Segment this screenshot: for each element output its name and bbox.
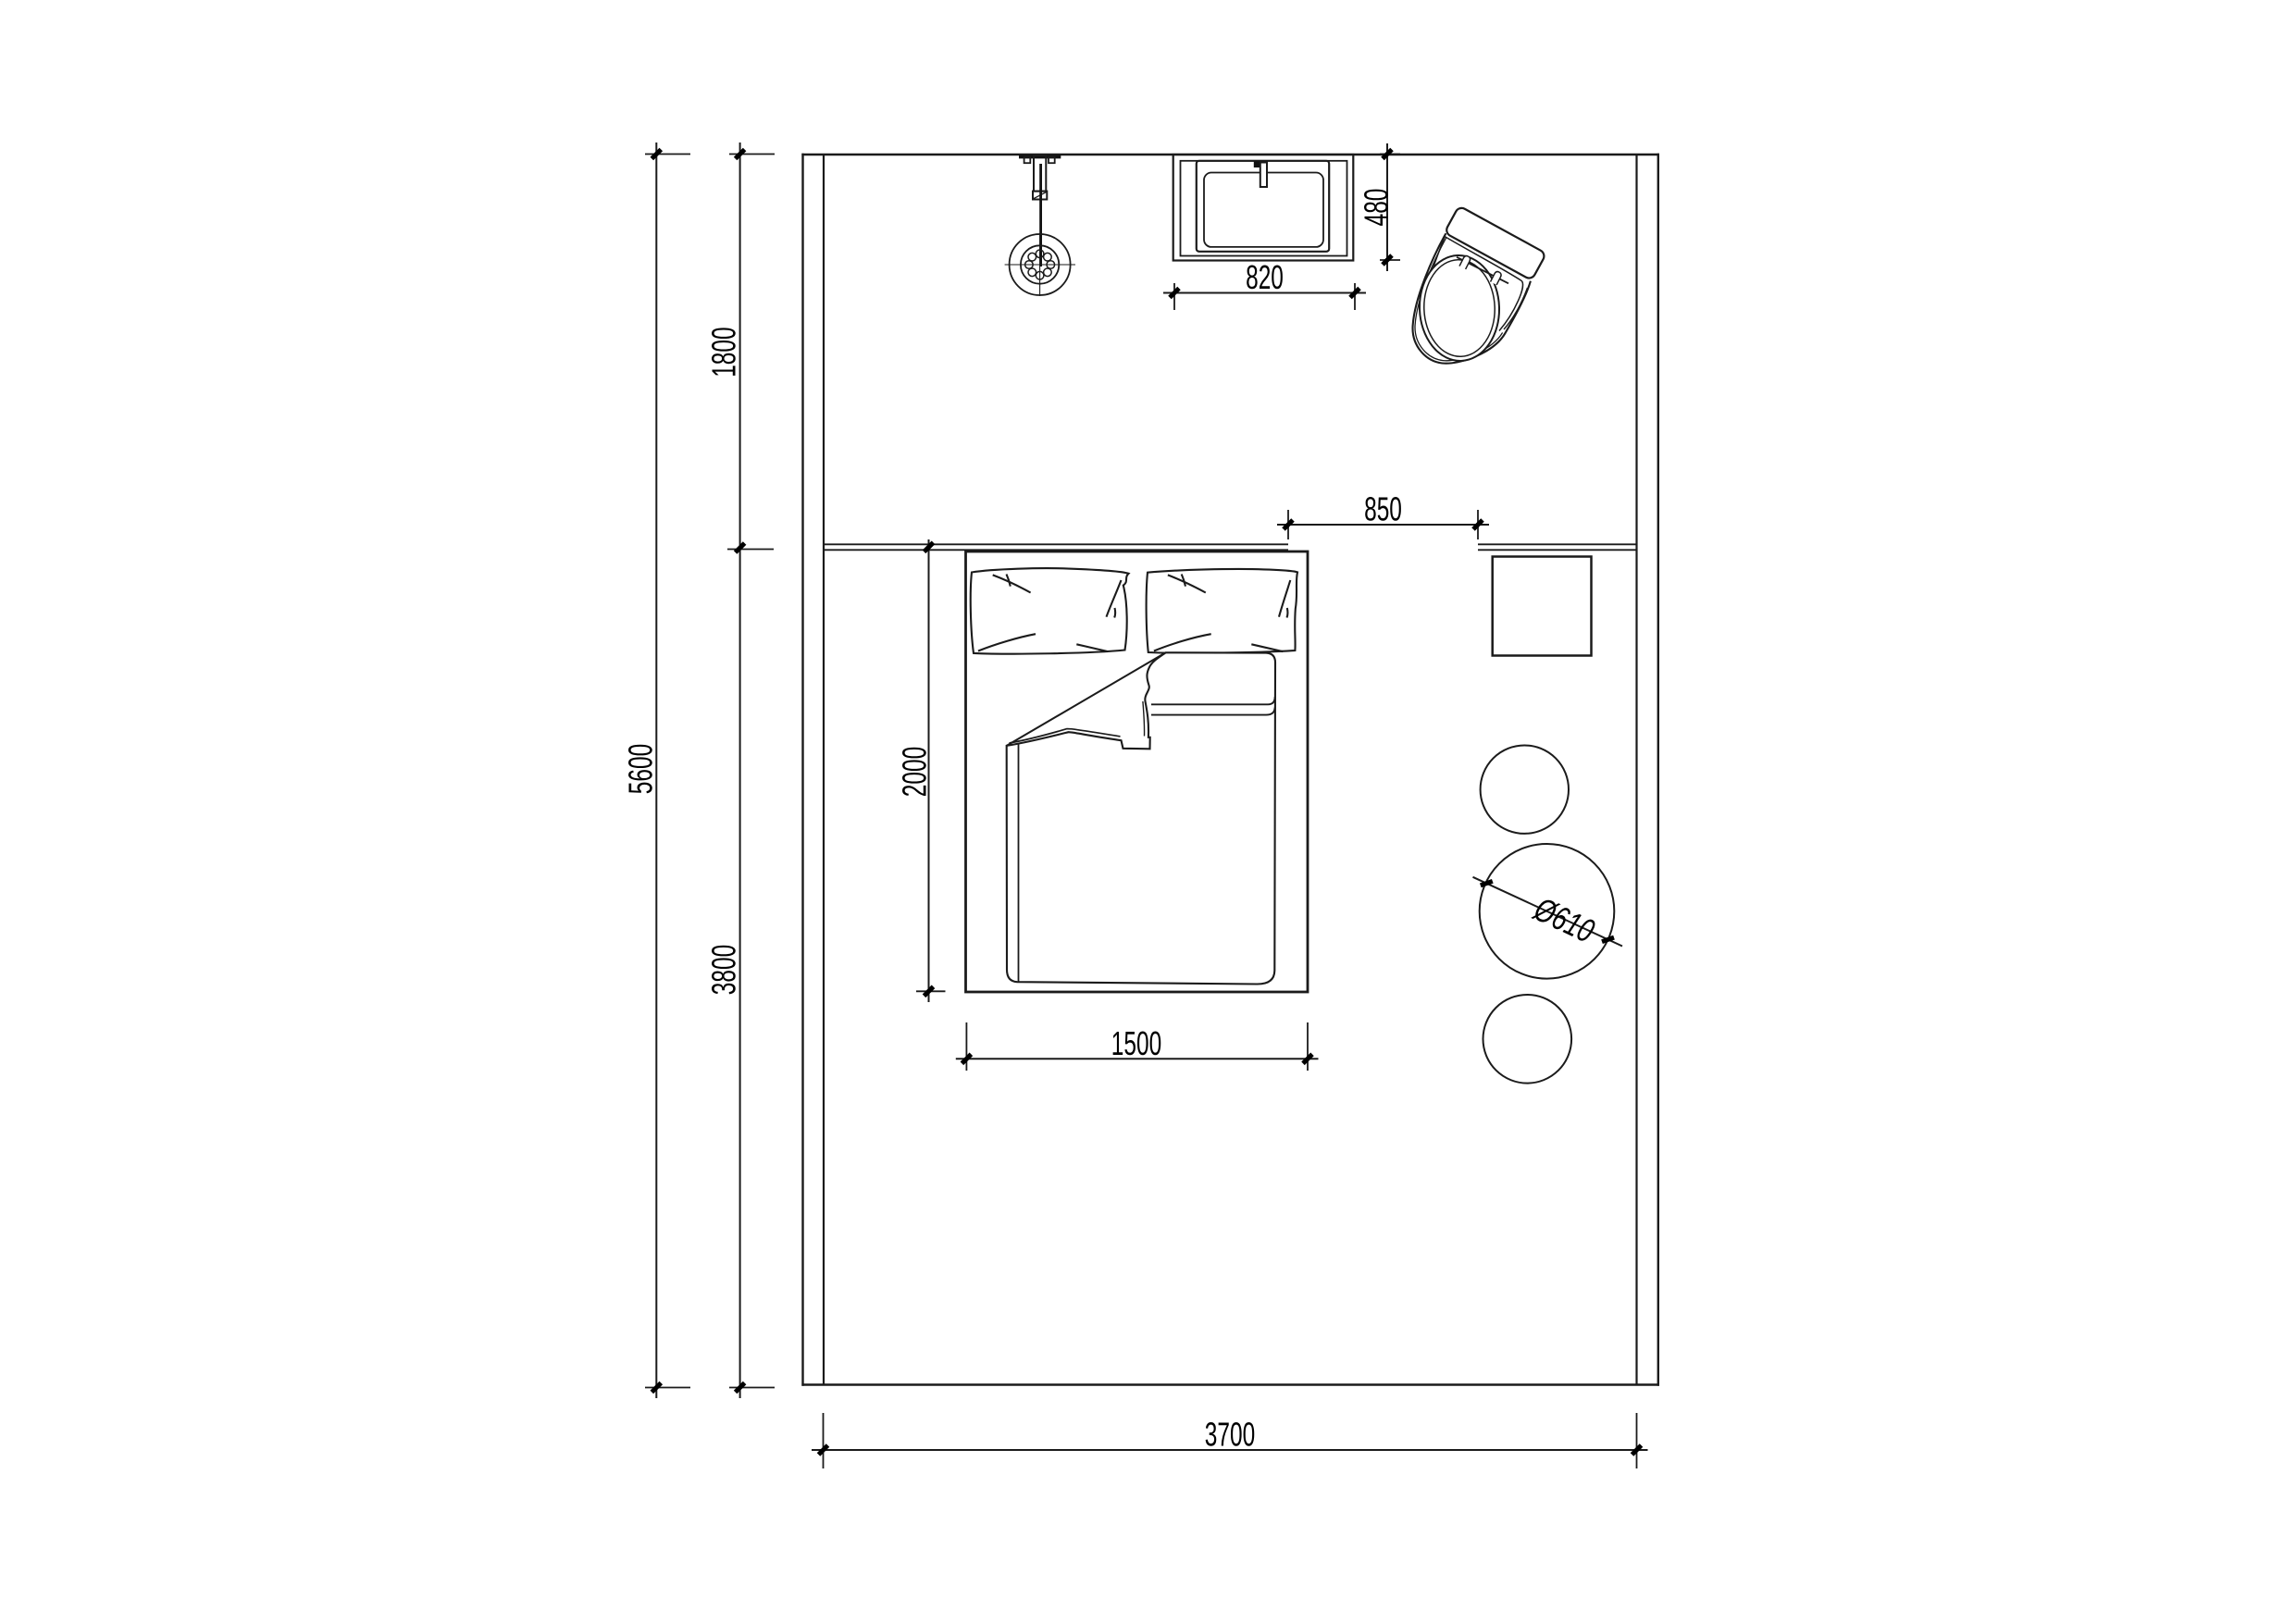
svg-text:850: 850 xyxy=(1364,490,1402,528)
svg-text:1500: 1500 xyxy=(1111,1024,1161,1062)
svg-text:3800: 3800 xyxy=(704,945,742,995)
svg-text:1800: 1800 xyxy=(704,327,742,377)
svg-text:3700: 3700 xyxy=(1205,1416,1255,1454)
svg-text:480: 480 xyxy=(1358,189,1396,227)
svg-text:2000: 2000 xyxy=(895,747,933,797)
svg-text:5600: 5600 xyxy=(622,744,660,794)
svg-text:820: 820 xyxy=(1246,258,1284,296)
